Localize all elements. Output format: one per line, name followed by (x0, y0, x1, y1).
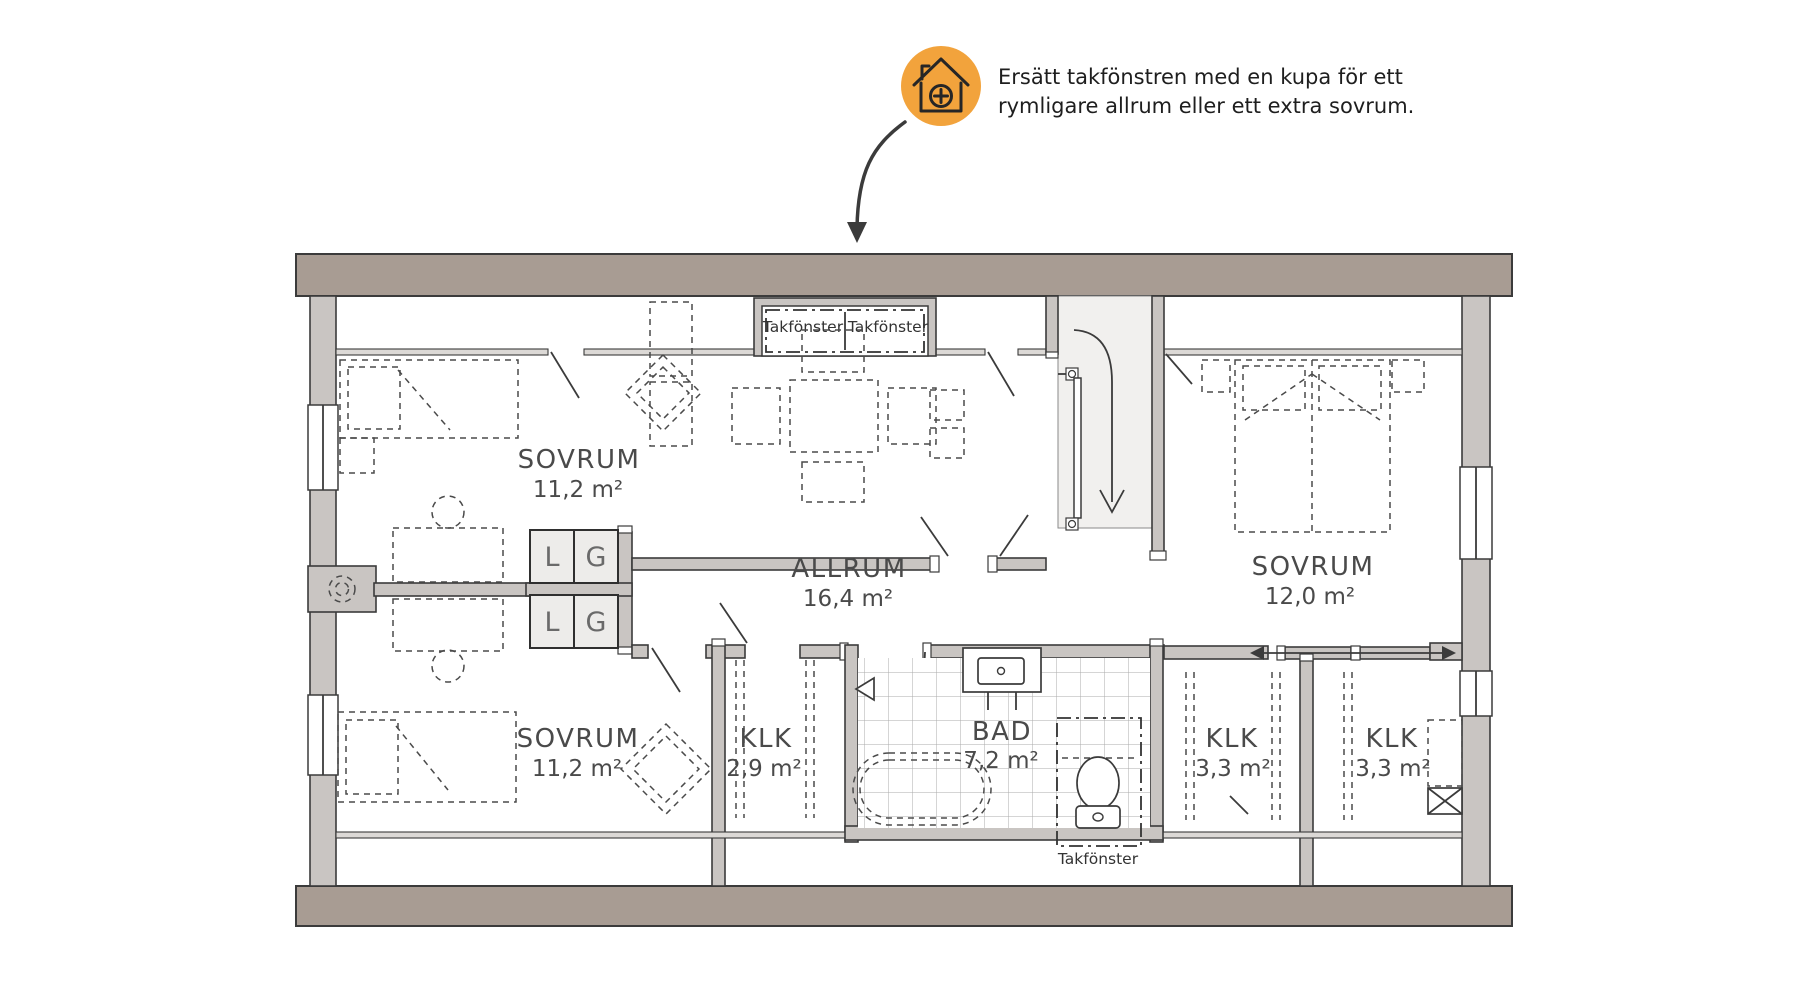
toilet (1076, 757, 1120, 828)
room-name: BAD (972, 717, 1032, 747)
room-area: 2,9 m² (726, 756, 802, 782)
bed-top-left (340, 360, 518, 473)
closet-letter-g: G (586, 542, 607, 573)
room-area: 16,4 m² (803, 586, 893, 612)
window-right-1 (1460, 467, 1492, 559)
closet-letter-l: L (544, 542, 559, 573)
lg-closets: L G L G (526, 530, 632, 648)
room-label-klk-right-2: KLK 3,3 m² (1355, 724, 1431, 782)
door-swing (551, 352, 579, 398)
bath-right-wall (1150, 645, 1163, 842)
room-name: KLK (739, 724, 792, 754)
window-right-2 (1460, 671, 1492, 716)
room-name: ALLRUM (791, 554, 906, 584)
room-label-bad: BAD 7,2 m² (963, 717, 1039, 774)
callout-arrow (847, 122, 905, 243)
floor-plan-page: Ersätt takfönstren med en kupa för ett r… (0, 0, 1800, 1008)
closet-letter-g: G (586, 607, 607, 638)
right-wall (1462, 296, 1490, 886)
door-swing (1000, 515, 1028, 556)
nightstand (1202, 360, 1230, 392)
room-area: 11,2 m² (532, 756, 622, 782)
top-wall (296, 254, 1512, 296)
room-area: 3,3 m² (1195, 756, 1271, 782)
callout-line2: rymligare allrum eller ett extra sovrum. (998, 94, 1414, 118)
room-name: KLK (1205, 724, 1258, 754)
closet-letter-l: L (544, 607, 559, 638)
table (790, 380, 878, 452)
nightstand (340, 438, 374, 473)
window-left-1 (308, 405, 338, 490)
room-label-klk-small: KLK 2,9 m² (726, 724, 802, 782)
callout: Ersätt takfönstren med en kupa för ett r… (847, 46, 1414, 243)
stair-wall-stub (1046, 296, 1058, 354)
bath-left-wall (845, 645, 858, 842)
skylight-top: Takfönster Takfönster (754, 298, 936, 356)
chimney (308, 566, 376, 612)
room-name: SOVRUM (1252, 552, 1375, 582)
room-label-sovrum-top-left: SOVRUM 11,2 m² (518, 445, 641, 503)
door-swing (720, 603, 747, 643)
armchair-diamond-allrum (625, 355, 701, 431)
nightstand (1392, 360, 1424, 392)
skylight-label: Takfönster (762, 318, 844, 336)
room-label-sovrum-bottom-left: SOVRUM 11,2 m² (517, 724, 640, 782)
room-area: 12,0 m² (1265, 584, 1355, 610)
divider-wall (374, 583, 530, 596)
door-swing (921, 517, 948, 556)
room-label-sovrum-right: SOVRUM 12,0 m² (1252, 552, 1375, 610)
stairwell-floor (1058, 296, 1152, 528)
skylight-label-bottom: Takfönster (1057, 850, 1139, 868)
door-swing (652, 648, 680, 692)
room-area: 11,2 m² (533, 477, 623, 503)
knee-wall (336, 349, 548, 355)
bottom-wall (296, 886, 1512, 926)
door-swing (1230, 796, 1248, 814)
callout-line1: Ersätt takfönstren med en kupa för ett (998, 65, 1403, 89)
room-label-klk-right-1: KLK 3,3 m² (1195, 724, 1271, 782)
room-area: 3,3 m² (1355, 756, 1431, 782)
door-swing (988, 352, 1014, 396)
skylight-label: Takfönster (847, 318, 929, 336)
bed-right (1202, 360, 1424, 532)
room-name: SOVRUM (518, 445, 641, 475)
room-label-allrum: ALLRUM 16,4 m² (791, 554, 906, 612)
stair-right-wall (1152, 296, 1164, 558)
floor-plan-svg: Ersätt takfönstren med en kupa för ett r… (0, 0, 1800, 1008)
door-swing (1166, 354, 1192, 384)
room-name: KLK (1365, 724, 1418, 754)
klk-divider-wall (1300, 660, 1313, 886)
window-left-2 (308, 695, 338, 775)
bedroom-klk-wall (712, 645, 725, 886)
room-name: SOVRUM (517, 724, 640, 754)
room-area: 7,2 m² (963, 748, 1039, 774)
bed-bottom-left (338, 712, 516, 802)
